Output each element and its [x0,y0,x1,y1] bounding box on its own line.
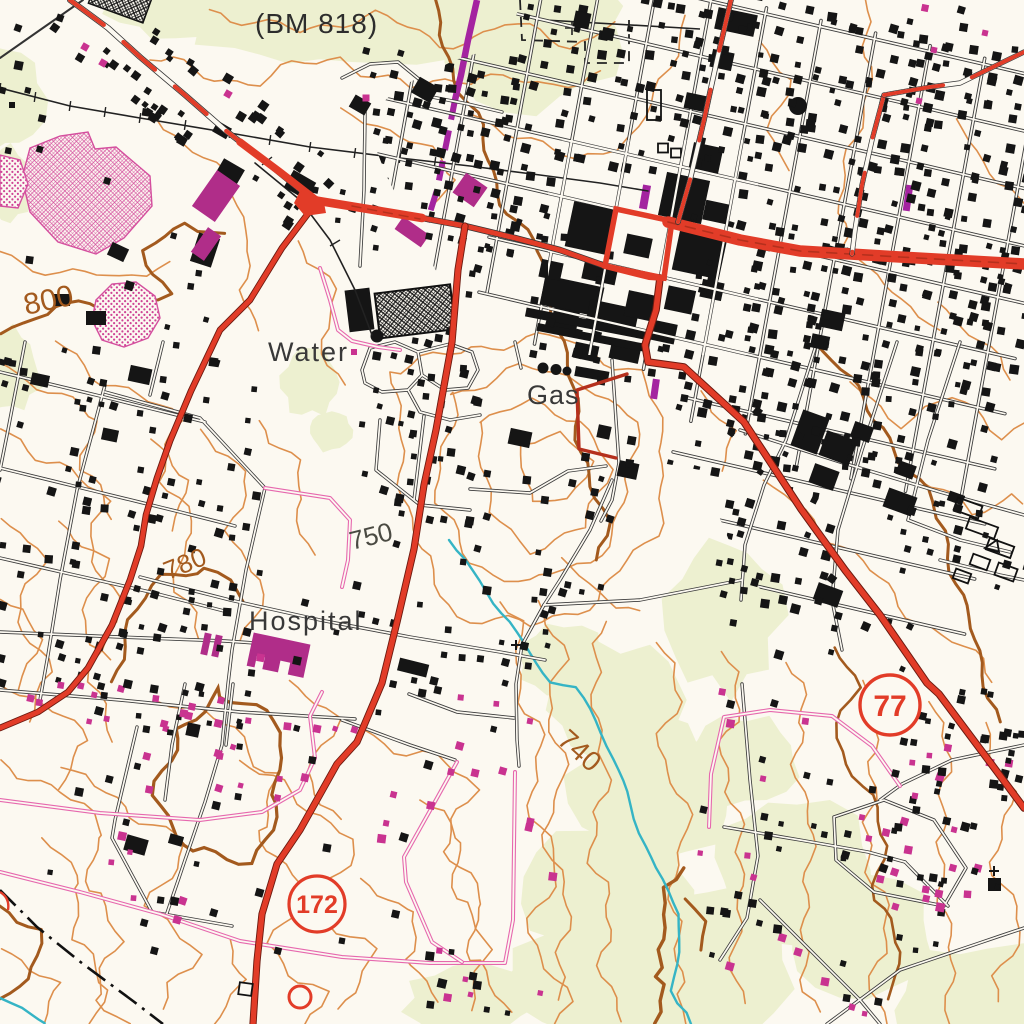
svg-text:(BM 818): (BM 818) [255,8,378,39]
svg-text:Hospital: Hospital [249,606,363,636]
svg-text:172: 172 [296,891,338,919]
svg-text:Gas: Gas [527,380,580,410]
svg-text:77: 77 [873,690,906,723]
svg-text:Water: Water [268,337,349,367]
